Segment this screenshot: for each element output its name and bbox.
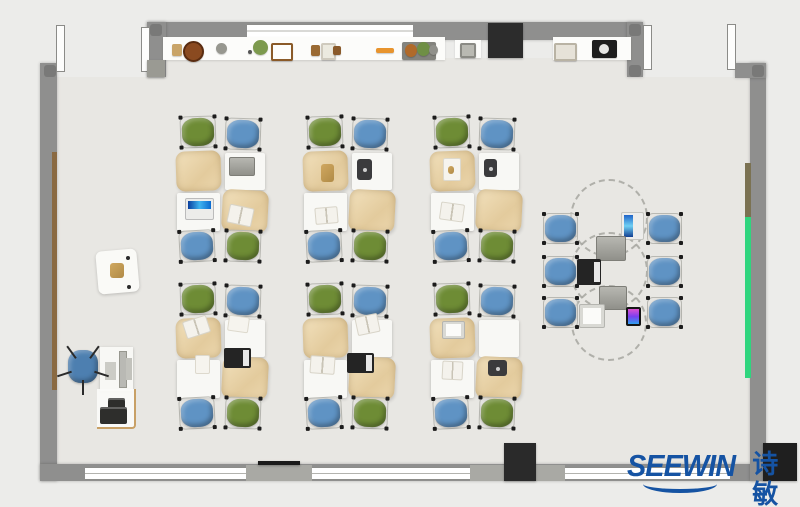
chair-foot: [257, 260, 261, 264]
chair-seat: [481, 231, 514, 260]
chair-foot: [339, 281, 343, 285]
item-tablet_dark: [488, 360, 507, 376]
item-laptop_black: [577, 259, 601, 285]
item-laptop_black: [224, 348, 251, 368]
chair-foot: [477, 313, 481, 317]
student-chair-blue: [178, 229, 216, 263]
desk-tan: [475, 189, 523, 233]
chair-foot: [350, 258, 354, 262]
item-tablet_dark: [484, 159, 497, 177]
item-book_open: [439, 201, 465, 222]
chair-foot: [542, 241, 546, 245]
student-chair-green: [306, 115, 343, 148]
chair-foot: [679, 255, 683, 259]
chair-foot: [258, 285, 262, 289]
chair-foot: [305, 116, 309, 120]
chair-seat: [307, 231, 340, 261]
chair-seat: [227, 119, 260, 148]
chair-foot: [432, 283, 436, 287]
chair-foot: [304, 230, 308, 234]
shelf-item-box: [333, 46, 341, 55]
chair-seat: [649, 258, 680, 285]
chair-foot: [224, 228, 228, 232]
chair-seat: [309, 284, 342, 313]
chair-foot: [224, 116, 228, 120]
item-screen: [594, 262, 599, 283]
chair-seat: [180, 398, 213, 428]
chair-seat: [436, 117, 469, 146]
chair-seat: [180, 231, 213, 261]
chair-foot: [646, 284, 650, 288]
chair-foot: [466, 281, 470, 285]
wall-post: [44, 65, 56, 77]
chair-foot: [542, 255, 546, 259]
window: [312, 467, 470, 480]
chair-foot: [385, 397, 389, 401]
item-screen: [628, 309, 639, 325]
chair-foot: [679, 325, 683, 329]
collab-chair-blue: [543, 256, 578, 287]
student-chair-green: [179, 115, 216, 148]
chair-foot: [351, 116, 355, 120]
chair-foot: [177, 230, 181, 234]
bin: [147, 60, 165, 77]
chair-foot: [478, 228, 482, 232]
chair-seat: [309, 117, 342, 146]
keyboard: [105, 362, 116, 380]
item-book_open: [309, 355, 335, 375]
window: [247, 24, 413, 38]
chair-foot: [211, 395, 215, 399]
window-pier: [246, 465, 312, 481]
chair-foot: [340, 258, 344, 262]
chair-foot: [258, 118, 262, 122]
chair-foot: [340, 425, 344, 429]
chair-foot: [350, 313, 354, 317]
door-leaf: [643, 25, 652, 70]
item-screen: [366, 355, 372, 371]
chair-foot: [646, 296, 650, 300]
student-chair-green: [433, 115, 470, 148]
chair-foot: [679, 241, 683, 245]
chair-foot: [511, 148, 515, 152]
chair-foot: [385, 230, 389, 234]
shelf-item-sphere: [216, 43, 227, 54]
item-screen: [496, 367, 500, 371]
desk-white: [479, 320, 519, 357]
chair-foot: [179, 146, 183, 150]
chair-seat: [307, 398, 340, 428]
chair-foot: [542, 296, 546, 300]
chair-foot: [223, 425, 227, 429]
chair-foot: [679, 212, 683, 216]
student-chair-green: [306, 282, 343, 315]
brand-cjk: 诗敏: [752, 450, 800, 507]
chair-foot: [213, 144, 217, 148]
chair-foot: [257, 427, 261, 431]
student-chair-blue: [305, 396, 343, 430]
chair-foot: [350, 425, 354, 429]
student-chair-green: [224, 396, 261, 429]
wall-post: [150, 24, 162, 36]
item-phone_color: [626, 307, 641, 326]
item-screen: [243, 350, 249, 366]
chair-foot: [351, 228, 355, 232]
collab-chair-blue: [647, 213, 682, 244]
item-screen: [583, 308, 601, 323]
wall-post: [629, 65, 641, 77]
chair-foot: [338, 228, 342, 232]
brand-logo: SEEWIN 诗敏: [627, 450, 800, 507]
item-laptop_blue: [185, 198, 214, 220]
item-book_open: [314, 206, 338, 225]
item-paper: [195, 355, 210, 374]
student-chair-blue: [305, 229, 343, 263]
item-screen: [446, 324, 462, 335]
chair-seat: [434, 231, 467, 261]
shelf-item-dot: [248, 50, 252, 54]
wall-board-green: [745, 217, 751, 378]
item-pouch: [110, 263, 124, 278]
chair-foot: [340, 144, 344, 148]
wall-post: [629, 24, 641, 36]
chair-foot: [467, 425, 471, 429]
chair-foot: [432, 116, 436, 120]
chair-foot: [465, 228, 469, 232]
student-chair-blue: [351, 117, 388, 150]
chair-seat: [354, 231, 387, 260]
wall-panel-olive: [745, 163, 751, 217]
chair-foot: [467, 144, 471, 148]
student-chair-blue: [432, 396, 470, 430]
item-screen: [489, 167, 493, 171]
chair-foot: [433, 146, 437, 150]
cabinet: [488, 23, 523, 58]
item-pouch: [321, 164, 334, 182]
chair-seat: [545, 215, 576, 242]
chair-foot: [575, 296, 579, 300]
chair-foot: [340, 311, 344, 315]
logo-swoosh-icon: [643, 475, 717, 493]
chair-foot: [306, 313, 310, 317]
student-chair-blue: [224, 117, 261, 150]
chair-foot: [306, 146, 310, 150]
chair-seat: [481, 398, 514, 427]
chair-foot: [511, 260, 515, 264]
chair-foot: [431, 230, 435, 234]
teacher-office-chair: [66, 348, 100, 385]
door-leaf: [727, 24, 736, 70]
chair-seat: [434, 398, 467, 428]
shelf-item-speaker-cone: [599, 44, 609, 54]
chair-foot: [179, 427, 183, 431]
student-chair-green: [351, 396, 388, 429]
chair-seat: [649, 215, 680, 242]
chair-foot: [211, 228, 215, 232]
chair-foot: [306, 427, 310, 431]
chair-foot: [306, 260, 310, 264]
chair-foot: [466, 114, 470, 118]
chair-foot: [177, 397, 181, 401]
student-chair-green: [351, 229, 388, 262]
chair-seat: [227, 286, 260, 315]
chair-foot: [350, 146, 354, 150]
pc-tower: [126, 358, 132, 380]
chair-foot: [646, 212, 650, 216]
chair-foot: [304, 397, 308, 401]
chair-foot: [478, 395, 482, 399]
chair-foot: [179, 313, 183, 317]
item-screen: [188, 201, 212, 209]
student-chair-green: [224, 229, 261, 262]
item-laptop_gray: [596, 236, 626, 261]
chair-foot: [511, 427, 515, 431]
door-leaf: [56, 25, 65, 72]
chair-seat: [182, 117, 215, 146]
chair-foot: [224, 283, 228, 287]
chair-foot: [385, 118, 389, 122]
chair-seat: [182, 284, 215, 313]
chair-foot: [213, 258, 217, 262]
chair-foot: [477, 258, 481, 262]
collab-chair-blue: [647, 256, 682, 287]
shelf-item-pencil: [376, 48, 394, 53]
item-laptop_white: [442, 321, 465, 339]
chair-foot: [258, 230, 262, 234]
chair-foot: [646, 325, 650, 329]
chair-seat: [545, 258, 576, 285]
shelf-item-box: [460, 43, 476, 58]
chair-seat: [481, 119, 514, 148]
table-dot: [127, 285, 131, 289]
chair-seat: [227, 398, 260, 427]
chair-foot: [512, 285, 516, 289]
chair-leg: [82, 380, 84, 395]
chair-seat: [354, 119, 387, 148]
chair-foot: [212, 114, 216, 118]
table-dot: [126, 256, 130, 260]
student-chair-green: [179, 282, 216, 315]
chair-foot: [467, 311, 471, 315]
item-book_open: [442, 360, 464, 380]
chair-seat: [227, 231, 260, 260]
chair-foot: [384, 148, 388, 152]
chair-foot: [257, 315, 261, 319]
chair-foot: [213, 425, 217, 429]
student-chair-blue: [224, 284, 261, 317]
item-laptop_white: [579, 304, 605, 328]
chair-foot: [679, 284, 683, 288]
column: [504, 443, 536, 481]
chair-foot: [433, 260, 437, 264]
chair-foot: [478, 283, 482, 287]
item-paper: [227, 315, 250, 334]
chair-foot: [575, 212, 579, 216]
chair-seat: [545, 299, 576, 326]
shelf-item-pot: [183, 41, 204, 62]
student-chair-blue: [478, 284, 515, 317]
wall-post: [752, 65, 764, 77]
chair-foot: [223, 258, 227, 262]
item-tablet_dark: [357, 159, 372, 180]
chair-foot: [512, 397, 516, 401]
collab-chair-blue: [647, 297, 682, 328]
chair-foot: [178, 283, 182, 287]
chair-foot: [212, 281, 216, 285]
item-laptop_black: [347, 353, 374, 373]
item-pouch: [448, 166, 454, 174]
chair-seat: [354, 398, 387, 427]
chair-seat: [354, 286, 387, 315]
chair-foot: [646, 255, 650, 259]
chair-foot: [305, 283, 309, 287]
desk-tan: [302, 317, 348, 359]
chair-foot: [385, 285, 389, 289]
student-chair-blue: [478, 117, 515, 150]
chair-foot: [679, 296, 683, 300]
floor: [166, 58, 637, 78]
collab-chair-blue: [543, 213, 578, 244]
chair-foot: [465, 395, 469, 399]
shelf-item-photo-frame: [554, 43, 577, 61]
chair-foot: [478, 116, 482, 120]
chair-foot: [477, 146, 481, 150]
student-chair-blue: [178, 396, 216, 430]
chair-foot: [477, 425, 481, 429]
printer: [100, 407, 127, 424]
item-screen: [624, 215, 633, 237]
chair-foot: [542, 212, 546, 216]
chair-foot: [351, 395, 355, 399]
chair-foot: [178, 116, 182, 120]
wall-board: [258, 461, 300, 465]
chair-foot: [224, 395, 228, 399]
item-screen: [363, 168, 367, 172]
chair-seat: [436, 284, 469, 313]
chair-foot: [223, 313, 227, 317]
chair-foot: [213, 311, 217, 315]
chair-foot: [384, 315, 388, 319]
chair-foot: [512, 118, 516, 122]
chair-foot: [431, 397, 435, 401]
chair-foot: [339, 114, 343, 118]
chair-foot: [542, 284, 546, 288]
wall-rail-wood: [52, 152, 57, 390]
student-chair-blue: [432, 229, 470, 263]
shelf-item-box: [311, 45, 320, 56]
chair-foot: [512, 230, 516, 234]
student-chair-green: [478, 396, 515, 429]
shelf-item-plant: [253, 40, 268, 55]
chair-foot: [384, 427, 388, 431]
chair-foot: [467, 258, 471, 262]
student-chair-green: [433, 282, 470, 315]
chair-foot: [433, 313, 437, 317]
chair-foot: [179, 260, 183, 264]
chair-foot: [258, 397, 262, 401]
desk-tan: [175, 150, 221, 192]
collab-chair-blue: [543, 297, 578, 328]
shelf-item-box: [172, 44, 182, 56]
shelf-item-photo-frame: [271, 43, 293, 61]
window: [85, 467, 246, 480]
desk-tan: [348, 189, 396, 233]
student-chair-blue: [351, 284, 388, 317]
chair-foot: [384, 260, 388, 264]
chair-foot: [223, 146, 227, 150]
chair-seat: [481, 286, 514, 315]
chair-foot: [511, 315, 515, 319]
chair-seat: [649, 299, 680, 326]
chair-foot: [433, 427, 437, 431]
wall-right: [750, 63, 766, 481]
chair-foot: [575, 241, 579, 245]
item-laptop_gray: [229, 157, 255, 176]
shelf-item-pot: [429, 45, 438, 55]
student-chair-green: [478, 229, 515, 262]
chair-foot: [542, 325, 546, 329]
chair-foot: [351, 283, 355, 287]
chair-foot: [338, 395, 342, 399]
floorplan-scene: SEEWIN 诗敏: [0, 0, 800, 507]
shelf-item-pot: [405, 44, 417, 57]
chair-foot: [257, 148, 261, 152]
chair-foot: [646, 241, 650, 245]
